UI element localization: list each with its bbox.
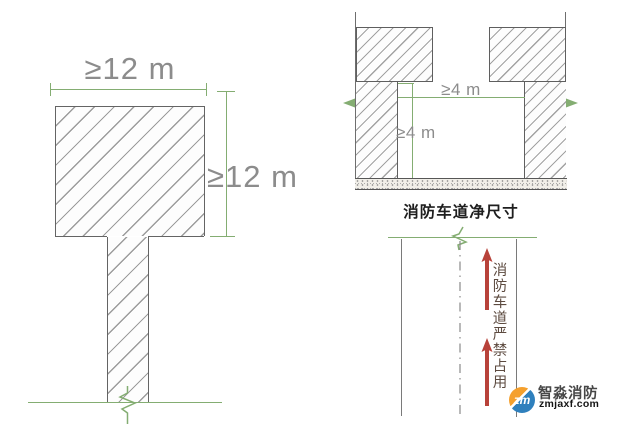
section-caption: 消防车道净尺寸 (396, 200, 526, 222)
section-arrow-right-icon (566, 99, 578, 108)
t-bottom-edge-left (55, 236, 107, 237)
t-stem-hatched-block (107, 237, 149, 403)
section-arrow-left-icon (343, 99, 355, 108)
t-top-dim-tick-right (206, 83, 207, 96)
overhang-block-left (356, 27, 433, 82)
logo-circle-icon: zm (509, 387, 535, 413)
t-top-dimension-label: ≥12 m (66, 53, 194, 84)
ground-strip (355, 178, 567, 190)
section-height-dim-tick (398, 83, 414, 84)
t-ground-line (28, 402, 222, 403)
logo-monogram: zm (514, 394, 531, 406)
section-height-label: ≥4 m (396, 124, 436, 141)
road-edge-left (401, 239, 402, 416)
wall-right (524, 82, 566, 178)
t-side-dimension-label: ≥12 m (207, 161, 298, 192)
t-side-dim-tick-top (217, 91, 235, 92)
t-side-dim-tick-bottom (210, 236, 235, 237)
logo-site-url: zmjaxf.com (539, 398, 599, 410)
fire-lane-requirements-figure: ≥12 m ≥12 m ≥4 m ≥4 m 消防车道净尺寸 (0, 0, 632, 439)
t-top-dimension-line (50, 89, 207, 90)
section-width-label: ≥4 m (420, 81, 502, 98)
no-occupy-vertical-text: 消防车道严禁占用 (491, 262, 506, 402)
section-width-dim-line (398, 97, 525, 98)
overhang-block-right (489, 27, 566, 82)
t-head-hatched-block (55, 106, 205, 236)
plan-top-line (388, 237, 537, 238)
wall-left (356, 82, 398, 178)
t-top-dim-tick-left (50, 83, 51, 96)
break-symbol-plan-line (453, 227, 466, 250)
t-bottom-edge-right (148, 236, 204, 237)
